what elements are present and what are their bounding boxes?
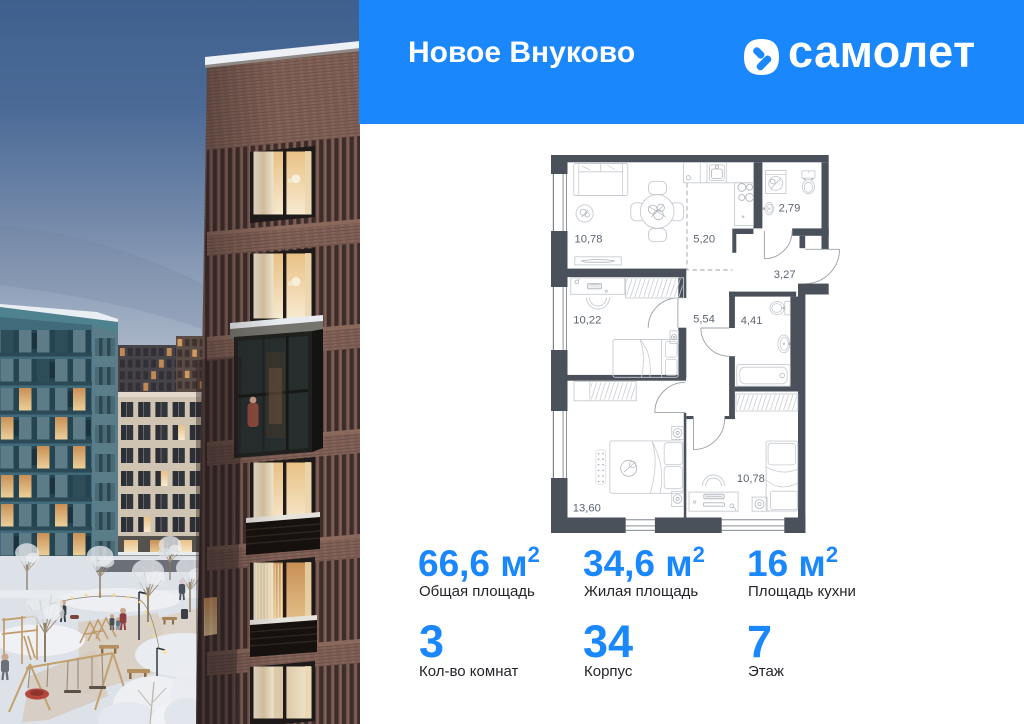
svg-text:*: *	[741, 214, 745, 224]
svg-text:2,79: 2,79	[779, 202, 801, 214]
svg-text:5,20: 5,20	[693, 234, 715, 246]
svg-text:3,27: 3,27	[774, 269, 796, 281]
svg-text:10,22: 10,22	[573, 315, 601, 327]
svg-text:10,78: 10,78	[575, 234, 603, 246]
svg-text:5,54: 5,54	[693, 314, 715, 326]
svg-text:13,60: 13,60	[573, 502, 601, 514]
svg-text:4,41: 4,41	[741, 315, 763, 327]
svg-text:10,78: 10,78	[737, 473, 765, 485]
